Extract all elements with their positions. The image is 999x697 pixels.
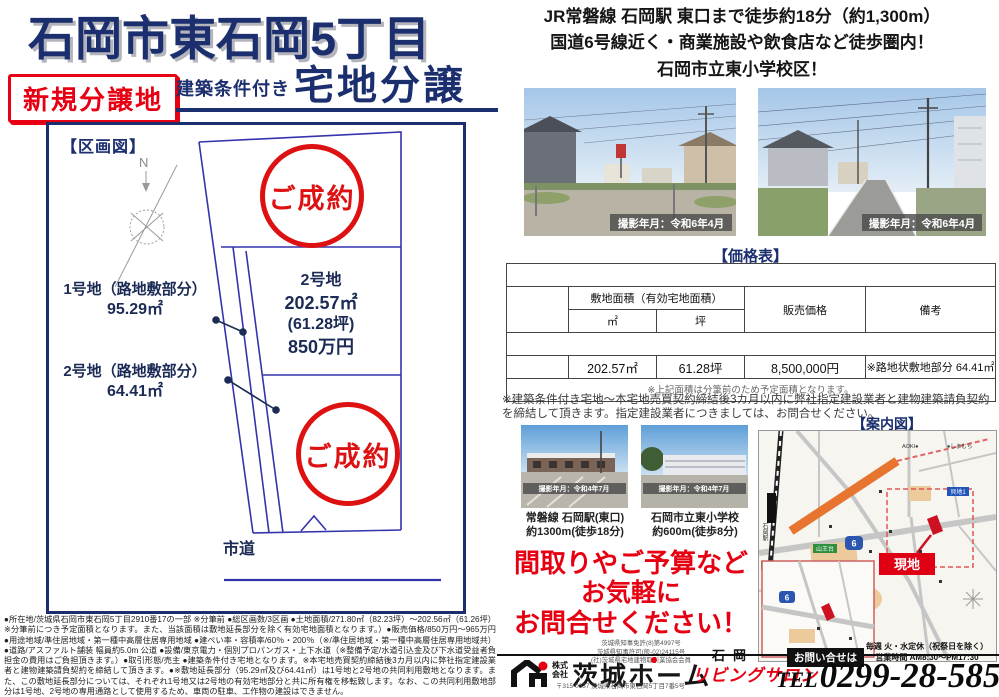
intersection-kaichi1: 貝地1 [950, 488, 966, 496]
company-logo-icon [510, 660, 552, 688]
inset-route6-label: 6 [785, 594, 790, 603]
cta-line-1: 間取りやご予算など [494, 548, 768, 579]
sold-stamp-top: ご成約 [260, 144, 364, 248]
school-access-distance: 約600m(徒歩8分) [634, 526, 756, 540]
blank-header-cell [507, 287, 569, 333]
station-access-name: 常磐線 石岡駅(東口) [514, 512, 636, 526]
page-title: 石岡市東石岡5丁目 [28, 0, 498, 69]
lot2-name: 2号地 [261, 271, 381, 292]
map-compass-icon [963, 589, 983, 609]
catch-line-2: 国道6号線近く・商業施設や飲食店など徒歩圏内！ [488, 30, 996, 56]
north-compass-icon [115, 165, 177, 287]
row-m2: 202.57㎡ [569, 356, 657, 379]
site-photo-left: 撮影年月：令和6年4月 [524, 88, 736, 236]
station-photo-caption: 撮影年月：令和4年7月 [539, 484, 610, 493]
lot2-alley-area: 64.41㎡ [55, 382, 215, 402]
cta-line-2: お気軽に [494, 579, 768, 609]
lot2-price: 850万円 [261, 336, 381, 359]
catch-line-1: JR常磐線 石岡駅 東口まで徒歩約18分（約1,300m） [488, 4, 996, 30]
lot2-area-m2: 202.57㎡ [261, 292, 381, 315]
company-address: 〒315-0037 茨城県石岡市東石岡5丁目7番5号 [556, 681, 685, 690]
route6-shield-label: 6 [851, 539, 856, 549]
school-access-name: 石岡市立東小学校 [634, 512, 756, 526]
sold-banner-1: ご成約ありがとうございます [507, 333, 996, 356]
lot-sale-label: 宅地分譲 [294, 66, 466, 106]
row-lot-name: 2号棟 [507, 356, 569, 379]
col-price-header: 販売価格 [745, 287, 866, 333]
intersection-sannodai: 山王台 [816, 545, 834, 553]
price-table-title: 石岡市東石岡5丁目 建築条件付き 宅地分譲 [507, 264, 996, 287]
tel-label: TEL [776, 667, 818, 692]
closed-days: 毎週 火・水定休（祝祭日を除く） [856, 642, 998, 653]
col-note-header: 備考 [866, 287, 996, 333]
guide-map-drawing: 6 山王台 国府4 貝地1 AOKI● ●しまむら 6 現地 石岡駅 [759, 431, 996, 661]
col-area-header: 敷地面積（有効宅地面積） [569, 287, 745, 310]
cta-block: 間取りやご予算など お気軽に お問合せください！ [494, 548, 768, 639]
catch-copy: JR常磐線 石岡駅 東口まで徒歩約18分（約1,300m） 国道6号線近く・商業… [488, 4, 996, 83]
site-plan-box: N 【区画図】 ご成約 ご成約 1号地（路地敷部分） 95.29㎡ 2号地（路地… [46, 122, 466, 614]
site-photo-right: 撮影年月：令和6年4月 [758, 88, 986, 236]
lot1-alley-area: 95.29㎡ [55, 300, 215, 320]
poi-shimamura: ●しまむら [947, 443, 972, 450]
row-note: ※路地状敷地部分 64.41㎡ [866, 356, 996, 379]
plan-heading: 【区画図】 [61, 133, 146, 157]
poi-aoki: AOKI● [902, 444, 918, 450]
station-photo: 撮影年月：令和4年7月 [521, 425, 628, 508]
photo1-caption: 撮影年月：令和6年4月 [618, 217, 724, 230]
corp-prefix-2: 会社 [552, 671, 568, 680]
subtitle: 建築条件付き 宅地分譲 [176, 66, 498, 112]
fine-print: ●所在地/茨城県石岡市東石岡5丁目2910番17の一部 ※分筆前 ●総区画数/3… [4, 615, 496, 697]
col-tsubo-header: 坪 [657, 310, 745, 333]
row-price: 8,500,000円 [745, 356, 866, 379]
phone-number: 0299-28-5858 [820, 656, 999, 695]
lot2-alley-label: 2号地（路地敷部分） [55, 363, 215, 382]
lot2-area-tsubo: (61.28坪) [261, 315, 381, 336]
phone-row: TEL0299-28-5858 [776, 656, 999, 696]
sold-stamp-bottom: ご成約 [296, 402, 400, 506]
city-road-label: 市道 [199, 540, 279, 560]
lot1-alley-label: 1号地（路地敷部分） [55, 281, 215, 300]
condition-label: 建築条件付き [176, 75, 290, 101]
station-map-label: 石岡駅 [761, 523, 768, 542]
compass-n-label: N [139, 155, 148, 170]
catch-line-3: 石岡市立東小学校区！ [488, 57, 996, 83]
guide-map: 6 山王台 国府4 貝地1 AOKI● ●しまむら 6 現地 石岡駅 [758, 430, 997, 662]
photo2-caption: 撮影年月：令和6年4月 [869, 217, 975, 230]
new-lot-badge: 新規分譲地 [8, 74, 178, 123]
row-tsubo: 61.28坪 [657, 356, 745, 379]
station-access-distance: 約1300m(徒歩18分) [514, 526, 636, 540]
cta-line-3: お問合せください！ [494, 608, 768, 639]
col-m2-header: ㎡ [569, 310, 657, 333]
corp-prefix: 株式 会社 [552, 662, 568, 680]
school-photo-caption: 撮影年月：令和4年7月 [659, 484, 730, 493]
license-1: 茨城県知事免許(8)第4997号 [566, 640, 716, 649]
school-photo: 撮影年月：令和4年7月 [641, 425, 748, 508]
site-location-label: 現地 [894, 557, 920, 572]
